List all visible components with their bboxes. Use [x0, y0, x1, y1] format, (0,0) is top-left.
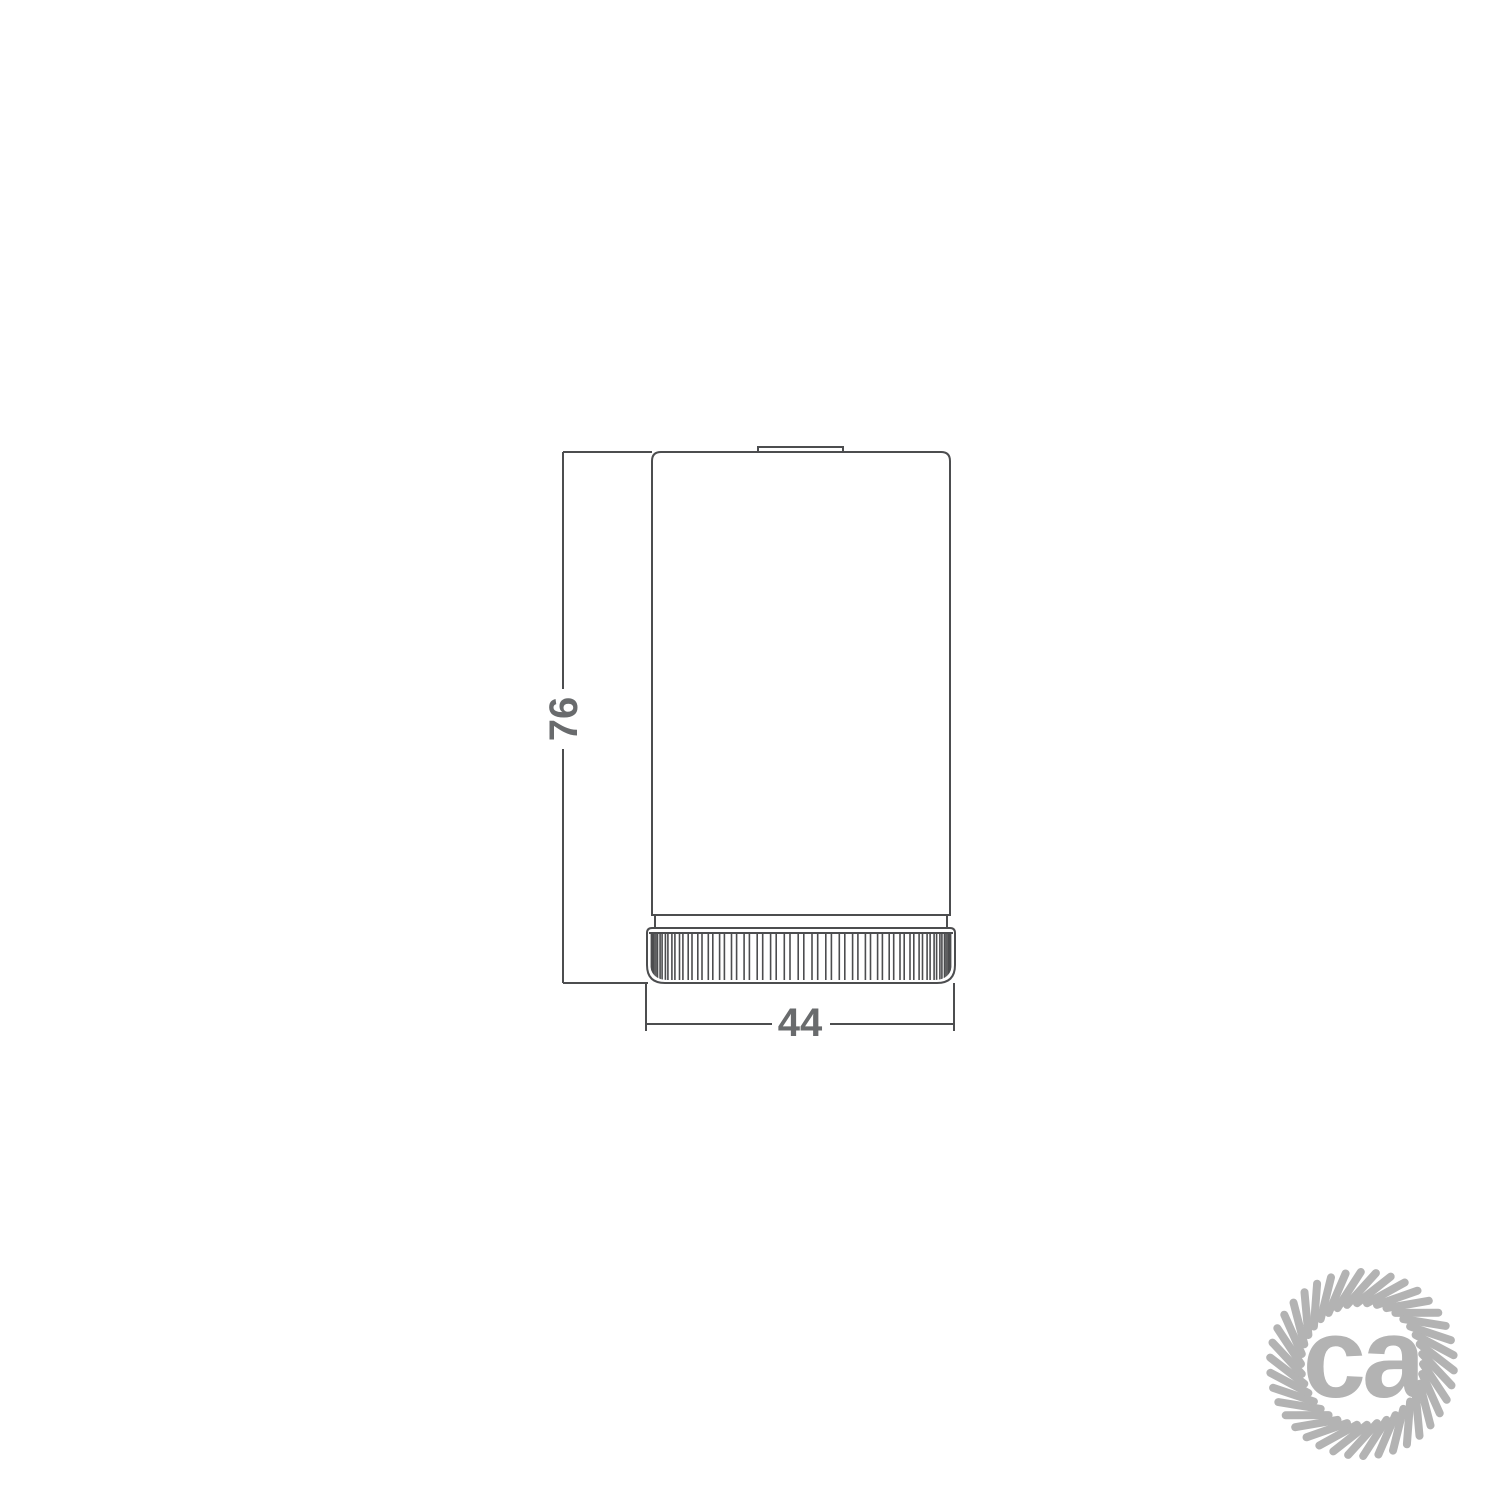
logo-text: ca	[1303, 1295, 1427, 1422]
knurled-ring	[647, 928, 955, 983]
height-dimension-label: 76	[542, 697, 586, 742]
width-dimension-label: 44	[778, 1001, 823, 1045]
technical-drawing-canvas: 76 44 ca	[0, 0, 1500, 1500]
socket-body	[652, 452, 950, 915]
width-dimension: 44	[646, 983, 954, 1047]
lamp-holder-outline	[647, 447, 955, 983]
height-dimension: 76	[540, 452, 652, 983]
knurl-ribs	[651, 934, 950, 982]
drawing-page: 76 44 ca	[0, 0, 1500, 1500]
brand-logo: ca	[1270, 1272, 1454, 1456]
